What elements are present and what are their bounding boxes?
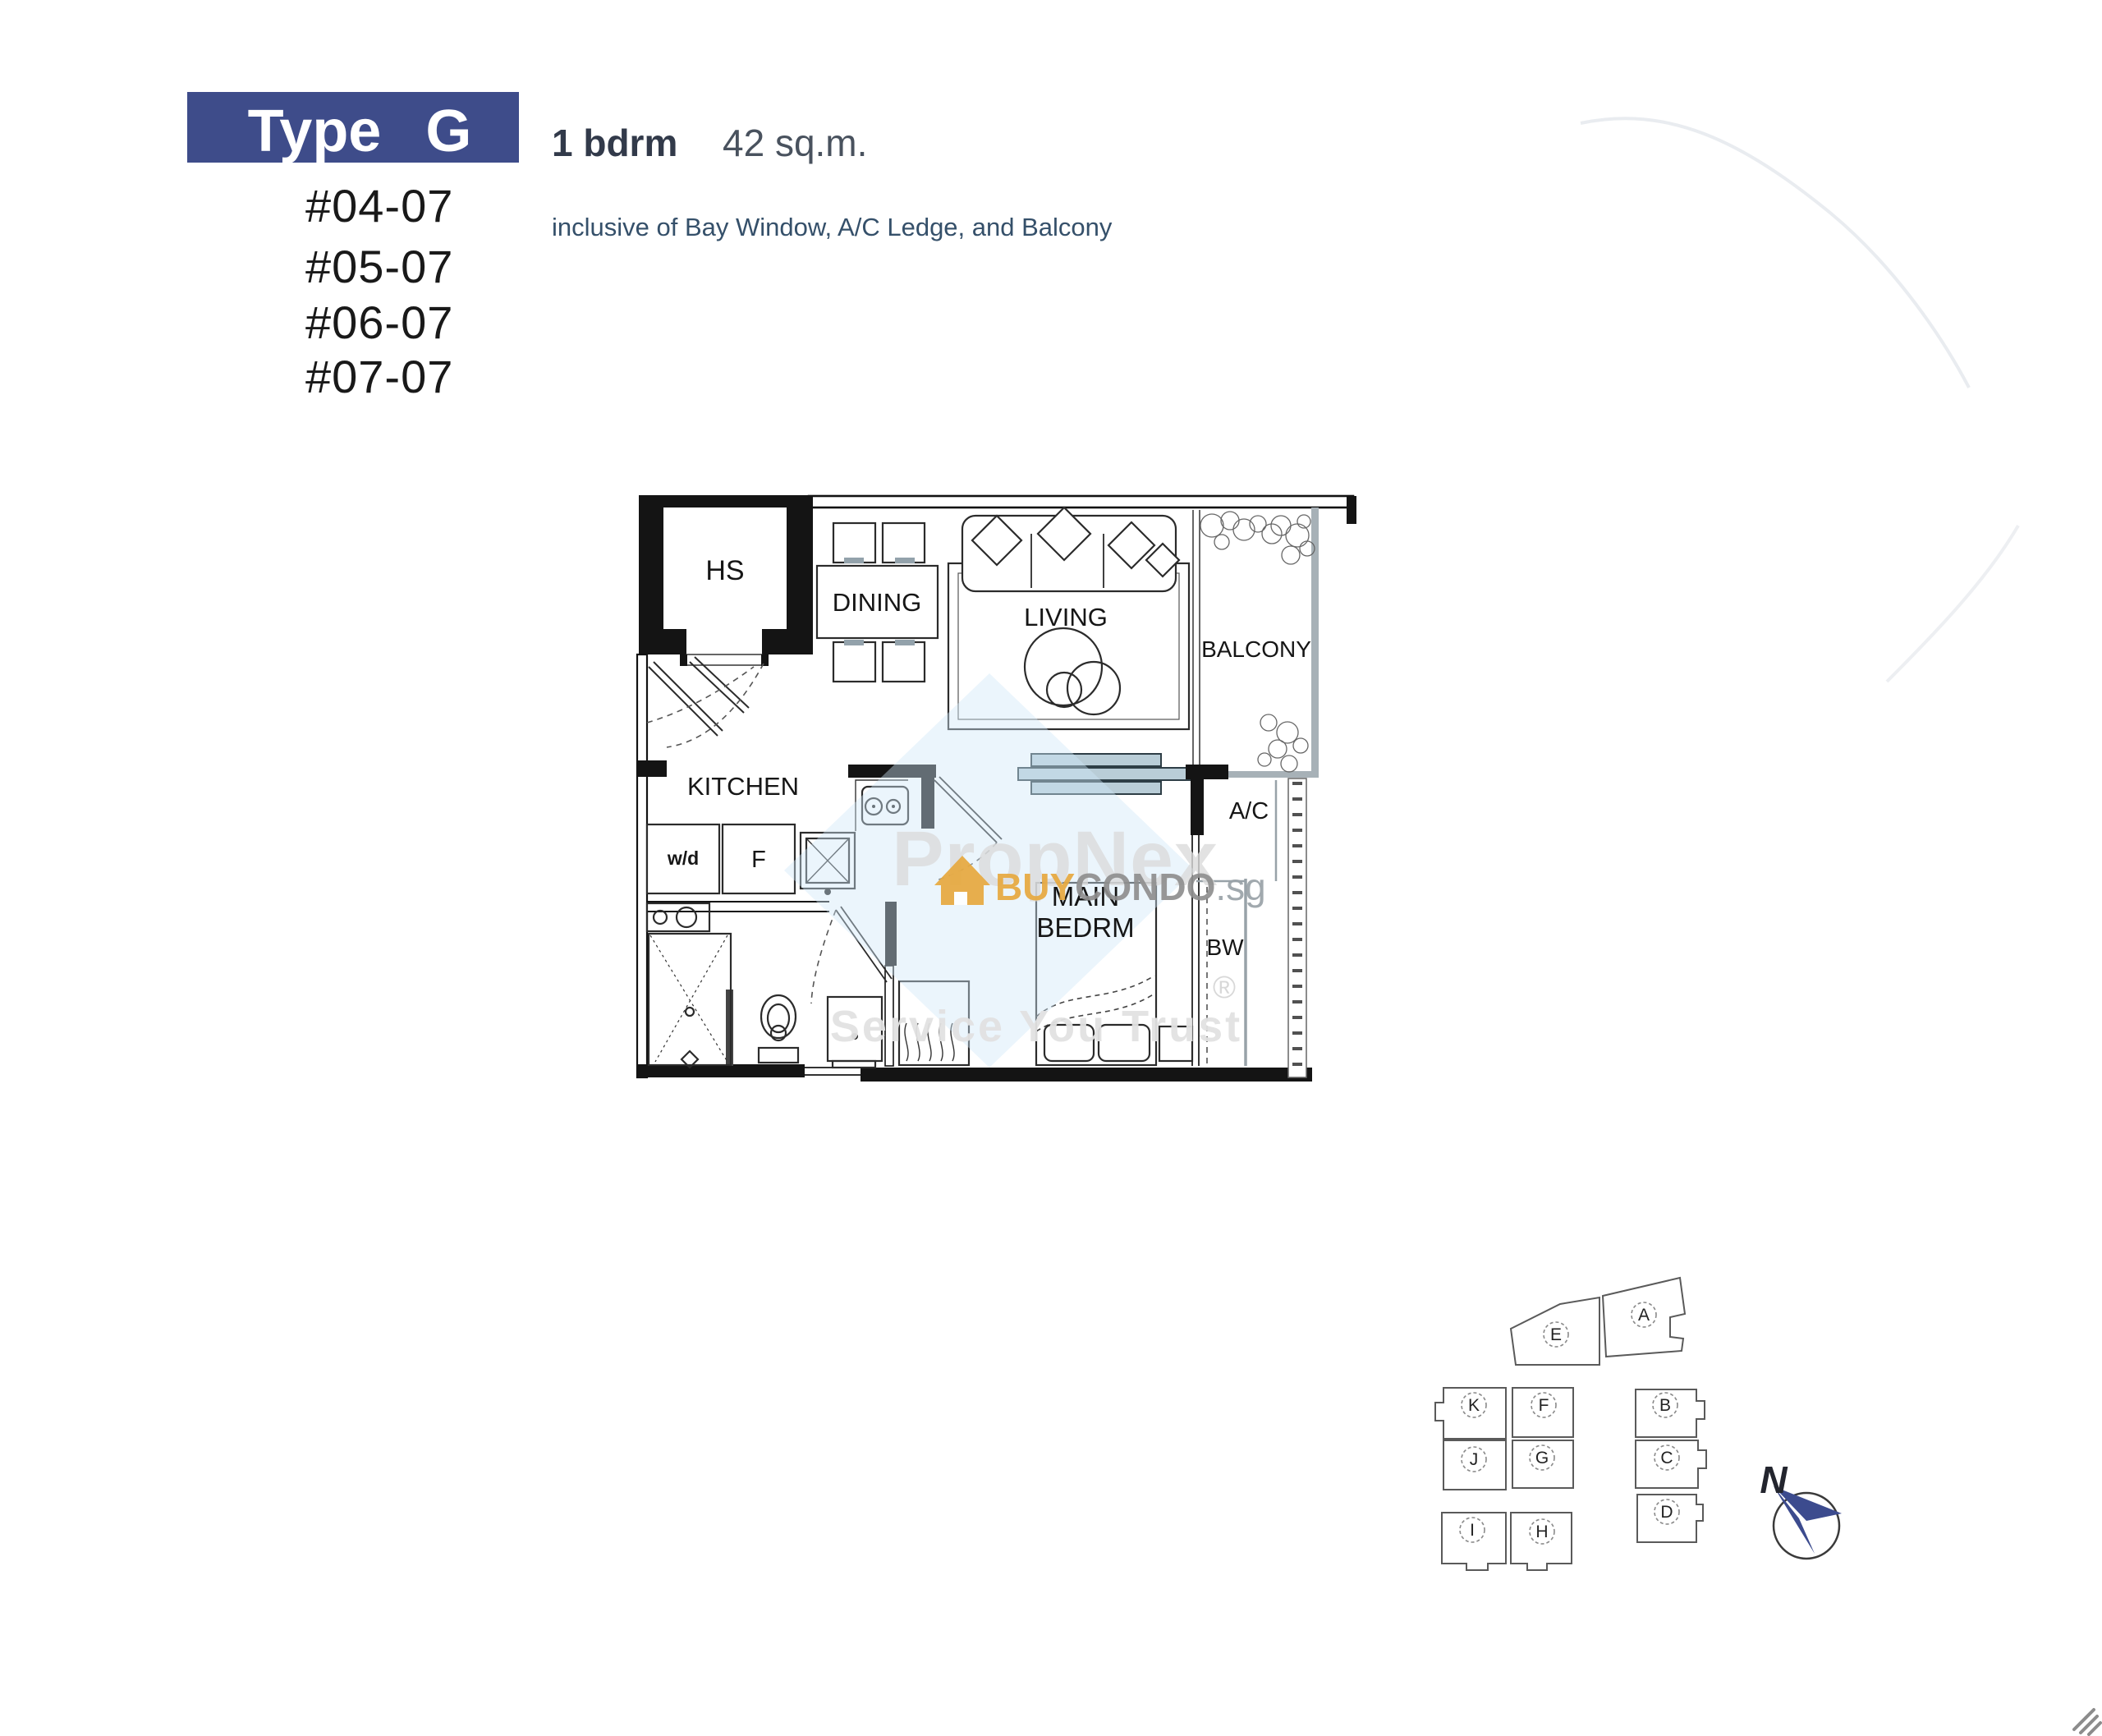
- site-unit-label-f: F: [1539, 1396, 1549, 1415]
- label-washer-dryer: w/d: [667, 847, 699, 869]
- site-unit-label-a: A: [1638, 1306, 1650, 1325]
- ledge-hatch-strip: [1288, 778, 1306, 1077]
- floorplan-canvas: HS DINING LIVING BALCONY KITCHEN w/d F M…: [0, 0, 2102, 1736]
- bedroom-count: 1 bdrm: [552, 122, 677, 164]
- site-unit-label-b: B: [1659, 1396, 1671, 1415]
- house-icon-door: [954, 892, 967, 905]
- site-unit-label-j: J: [1470, 1450, 1479, 1469]
- site-block-h: [1511, 1513, 1572, 1570]
- label-living: LIVING: [1024, 603, 1108, 631]
- site-unit-label-g: G: [1535, 1449, 1549, 1467]
- watermark-buy: BUY: [995, 866, 1075, 908]
- label-bay-window: BW: [1206, 935, 1244, 960]
- unit-number: #07-07: [305, 351, 453, 402]
- site-unit-label-c: C: [1660, 1449, 1673, 1467]
- label-balcony: BALCONY: [1201, 636, 1311, 662]
- watermark-sg: .sg: [1215, 866, 1265, 908]
- inclusive-note: inclusive of Bay Window, A/C Ledge, and …: [552, 213, 1113, 241]
- left-wall-stub: [637, 760, 667, 777]
- watermark-tagline: Service You Trust: [830, 1002, 1242, 1051]
- label-main-bedroom-2: BEDRM: [1036, 912, 1134, 943]
- sofa: [962, 507, 1179, 591]
- watermark-condo: CONDO: [1075, 866, 1215, 908]
- label-ac-ledge: A/C: [1229, 798, 1269, 824]
- site-unit-label-i: I: [1470, 1521, 1475, 1540]
- bottom-wall-right: [861, 1068, 1312, 1082]
- bottom-wall-left: [637, 1064, 805, 1077]
- site-unit-label-k: K: [1468, 1396, 1480, 1415]
- site-unit-label-e: E: [1550, 1325, 1562, 1344]
- unit-number: #04-07: [305, 180, 453, 232]
- top-wall-endcap: [1347, 496, 1356, 524]
- north-label: N: [1760, 1458, 1788, 1501]
- floorplan-page: HS DINING LIVING BALCONY KITCHEN w/d F M…: [0, 0, 2102, 1736]
- watermark-buycondo: BUYCONDO.sg: [995, 866, 1266, 908]
- unit-number: #05-07: [305, 241, 453, 292]
- site-unit-label-h: H: [1535, 1522, 1548, 1541]
- label-hs: HS: [705, 555, 744, 586]
- left-wall: [637, 654, 647, 1077]
- label-kitchen: KITCHEN: [687, 772, 799, 801]
- watermark-registered: ®: [1213, 971, 1236, 1005]
- top-wall: [809, 496, 1353, 507]
- area-size: 42 sq.m.: [723, 122, 867, 164]
- label-fridge: F: [751, 847, 766, 873]
- unit-number-list: #04-07 #05-07 #06-07 #07-07: [305, 180, 453, 402]
- label-dining: DINING: [833, 588, 922, 617]
- site-unit-label-d: D: [1660, 1503, 1673, 1522]
- unit-number: #06-07: [305, 296, 453, 348]
- type-banner-label: Type G: [248, 99, 472, 164]
